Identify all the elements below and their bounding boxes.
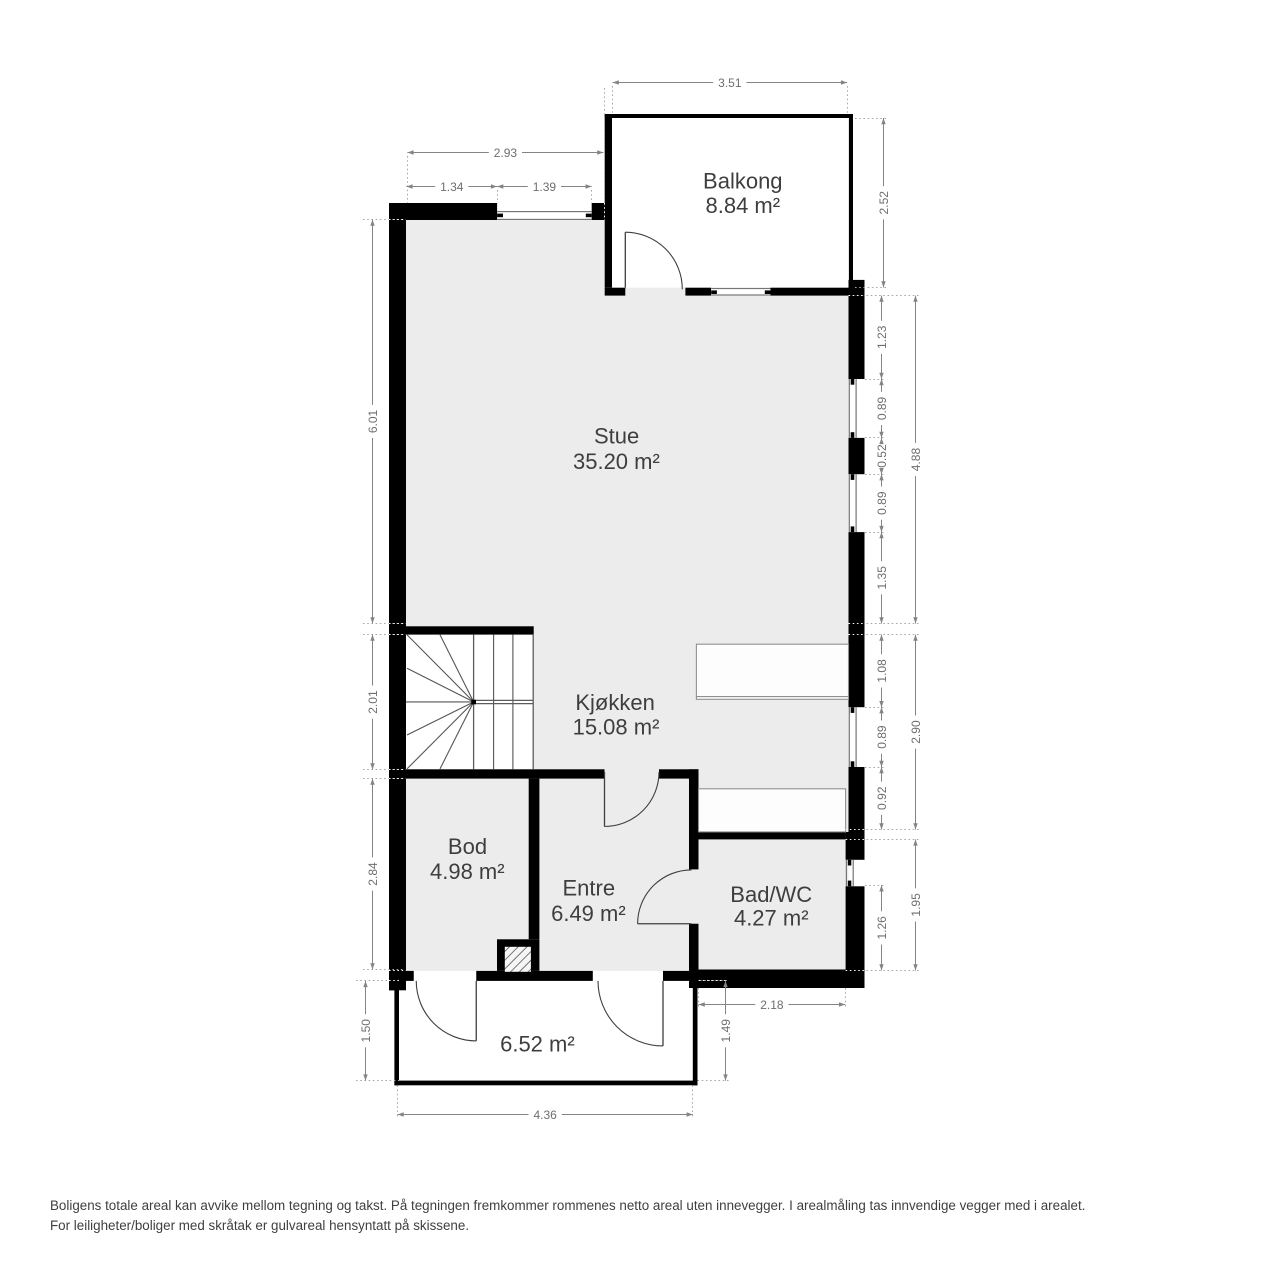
svg-text:2.90: 2.90 (909, 720, 923, 744)
svg-text:1.26: 1.26 (875, 916, 889, 940)
svg-text:0.89: 0.89 (875, 725, 889, 749)
svg-text:6.49 m²: 6.49 m² (551, 901, 626, 926)
svg-text:6.01: 6.01 (366, 409, 380, 433)
svg-text:1.95: 1.95 (909, 893, 923, 917)
svg-text:Balkong: Balkong (703, 168, 783, 193)
svg-text:8.84 m²: 8.84 m² (706, 193, 781, 218)
svg-text:1.23: 1.23 (875, 325, 889, 349)
svg-text:1.39: 1.39 (533, 180, 557, 194)
svg-text:15.08 m²: 15.08 m² (573, 714, 660, 739)
svg-text:2.01: 2.01 (366, 690, 380, 714)
svg-text:Bad/WC: Bad/WC (730, 882, 812, 907)
svg-text:1.08: 1.08 (875, 659, 889, 683)
svg-text:4.88: 4.88 (909, 448, 923, 472)
svg-text:35.20 m²: 35.20 m² (573, 449, 660, 474)
svg-text:4.98 m²: 4.98 m² (430, 859, 505, 884)
svg-text:Kjøkken: Kjøkken (575, 690, 654, 715)
svg-text:2.93: 2.93 (494, 146, 518, 160)
svg-text:0.52: 0.52 (875, 444, 889, 468)
svg-text:0.89: 0.89 (875, 396, 889, 420)
svg-text:1.49: 1.49 (719, 1019, 733, 1043)
svg-text:2.18: 2.18 (760, 998, 784, 1012)
svg-text:3.51: 3.51 (718, 76, 742, 90)
svg-text:0.89: 0.89 (875, 491, 889, 515)
svg-text:Stue: Stue (594, 423, 639, 448)
svg-text:2.84: 2.84 (366, 862, 380, 886)
svg-text:4.27 m²: 4.27 m² (734, 906, 809, 931)
svg-text:Entre: Entre (563, 875, 616, 900)
svg-text:0.92: 0.92 (875, 786, 889, 810)
svg-text:4.36: 4.36 (533, 1108, 557, 1122)
svg-text:6.52 m²: 6.52 m² (500, 1032, 575, 1057)
svg-text:1.34: 1.34 (440, 180, 464, 194)
svg-text:2.52: 2.52 (877, 191, 891, 215)
svg-text:1.50: 1.50 (359, 1019, 373, 1043)
svg-text:1.35: 1.35 (875, 566, 889, 590)
svg-text:Bod: Bod (448, 834, 487, 859)
